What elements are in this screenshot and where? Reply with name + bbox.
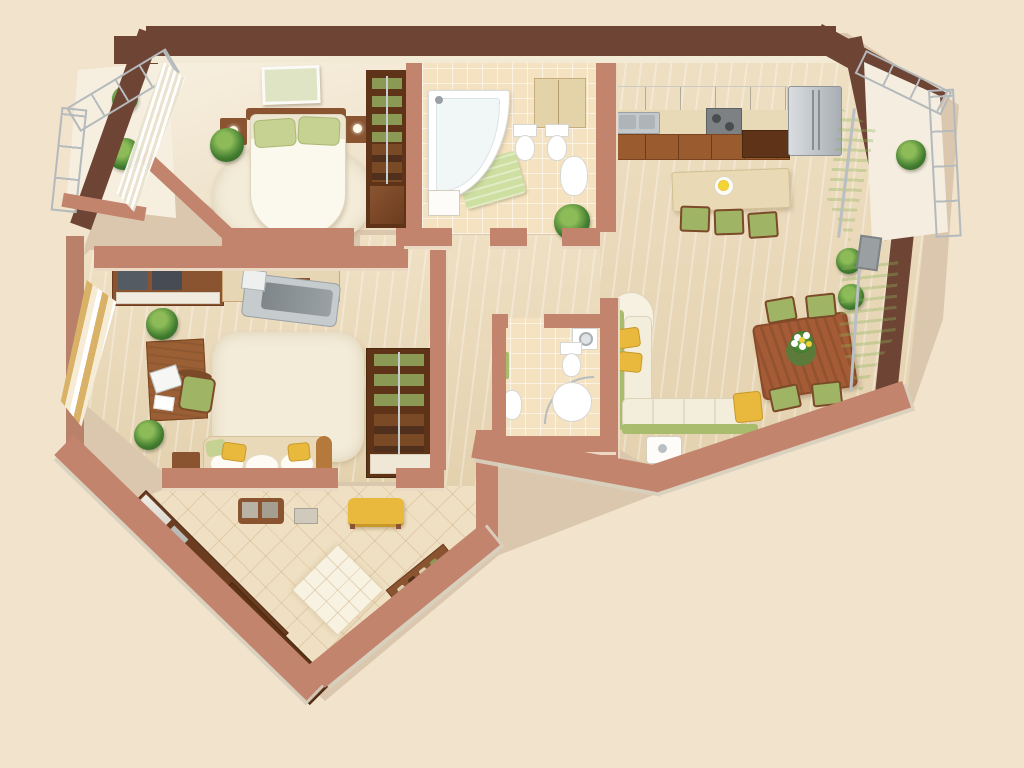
bath-vanity-divider [558, 80, 559, 124]
sofa-yellow-pillow-2 [617, 351, 643, 373]
sofa-yellow-pillow-left [221, 441, 247, 462]
wall-study-top [94, 246, 408, 271]
hall-ottoman-cushions [242, 502, 258, 518]
wall-bathroom-bottom-3 [562, 228, 600, 249]
wall-study-bottom-right [396, 468, 444, 491]
dining-chair-2 [805, 292, 837, 319]
wall-study-bottom-left [162, 468, 338, 491]
treadmill-console [241, 269, 267, 292]
bidet-bowl [547, 135, 567, 161]
wall-bathroom-bottom-1 [404, 228, 452, 249]
bath-vanity-cabinet [534, 78, 586, 128]
bar-chair-3 [747, 211, 779, 239]
side-table-object [658, 444, 667, 453]
stove-burner-2 [725, 122, 734, 131]
wall-small-bath-top-1 [492, 314, 508, 328]
wall-small-bath-top-2 [544, 314, 616, 328]
wall-picture-frame-right [856, 235, 883, 272]
shelf-pole [398, 352, 400, 456]
desk-papers [153, 395, 175, 412]
bar-chair-1 [680, 205, 711, 232]
hall-bench-legs [350, 524, 355, 529]
bath-step-shelf [428, 190, 460, 216]
bar-flower [718, 180, 729, 191]
wall-bathroom-right [596, 52, 618, 232]
kitchen-sink-basin-left [619, 115, 636, 129]
dining-chair-1 [764, 296, 798, 325]
hall-yellow-bench [348, 498, 404, 527]
shower-tray [552, 382, 592, 422]
bathtub-faucet [435, 96, 443, 104]
wardrobe-pole [386, 76, 388, 184]
wall-unit-drawers [116, 292, 220, 304]
stove-burner-1 [712, 114, 721, 123]
sofa-yellow-pillow-3 [733, 391, 764, 424]
flower-centerpiece-yellow-blooms [799, 337, 805, 343]
desk-chair [177, 374, 216, 415]
floor-plan-stage [0, 0, 1024, 768]
refrigerator-handles [812, 90, 814, 150]
nightstand-lamp-right [353, 124, 362, 133]
kitchen-tall-cabinet [742, 130, 790, 158]
top-wall-inner-face [150, 56, 836, 63]
wall-corridor-left [430, 250, 448, 470]
refrigerator [788, 86, 842, 156]
small-toilet-bowl [562, 353, 581, 377]
bedroom-picture [261, 65, 320, 105]
sofa-yellow-pillow-right [287, 442, 311, 462]
bathroom-washbasin [560, 156, 588, 196]
kitchen-sink-basin-right [639, 115, 655, 129]
hall-console [294, 508, 318, 524]
wardrobe-door-panel [370, 186, 404, 224]
bed-pillow-right [297, 116, 340, 146]
outer-wall-top [146, 26, 836, 56]
toilet-bowl [515, 135, 535, 161]
bed-pillow-left [253, 118, 297, 149]
bar-chair-2 [714, 208, 745, 235]
corner-sofa-front-edge [622, 424, 758, 434]
wall-bathroom-left [406, 52, 422, 232]
wall-bathroom-bottom-2 [490, 228, 527, 249]
